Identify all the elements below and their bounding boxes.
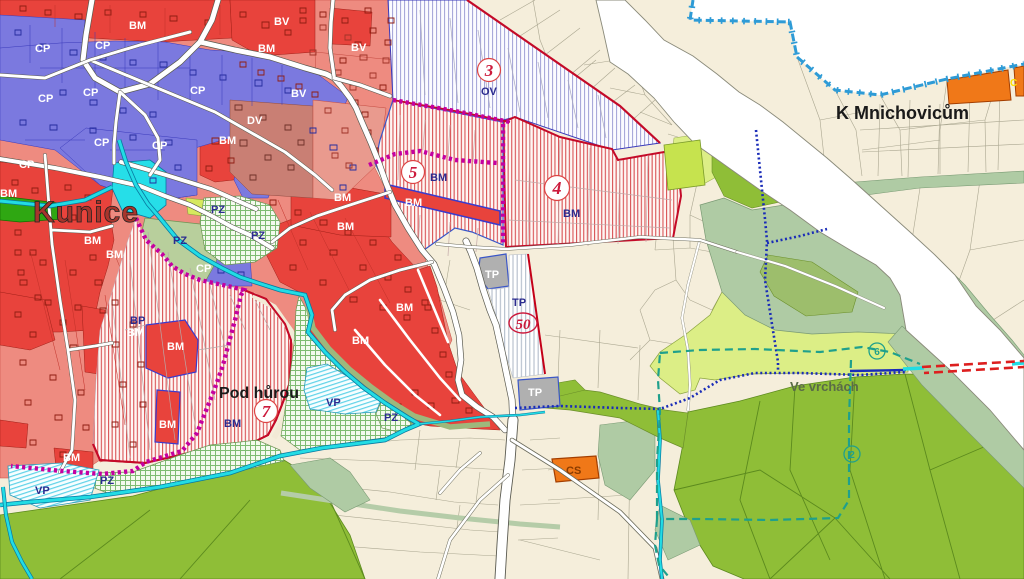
svg-text:Pod hůrou: Pod hůrou [219,385,299,402]
svg-text:PZ: PZ [100,475,114,487]
svg-text:BM: BM [84,235,101,247]
svg-text:BM: BM [159,419,176,431]
svg-text:BM: BM [106,249,123,261]
svg-text:BM: BM [563,208,580,220]
svg-text:CP: CP [19,159,34,171]
svg-text:BM: BM [334,192,351,204]
svg-text:2: 2 [849,450,855,461]
svg-text:TP: TP [485,269,499,281]
svg-text:BM: BM [352,335,369,347]
svg-text:CP: CP [38,93,53,105]
svg-text:BM: BM [430,172,447,184]
svg-text:CP: CP [196,263,211,275]
svg-text:BM: BM [224,418,241,430]
svg-text:Ve vrchách: Ve vrchách [790,379,859,394]
svg-text:BM: BM [63,452,80,464]
svg-text:DV: DV [247,115,263,127]
svg-text:BM: BM [0,188,17,200]
svg-text:BM: BM [219,135,236,147]
svg-text:CP: CP [83,87,98,99]
svg-text:PZ: PZ [384,412,398,424]
svg-text:CP: CP [152,140,167,152]
svg-text:BV: BV [291,88,307,100]
svg-text:5: 5 [409,163,418,182]
svg-text:PZ: PZ [211,204,225,216]
svg-text:Kunice: Kunice [33,196,139,229]
svg-text:3: 3 [484,61,494,80]
svg-text:CS: CS [566,465,581,477]
svg-text:BM: BM [127,327,144,339]
svg-text:50: 50 [516,317,532,333]
svg-text:BM: BM [405,197,422,209]
svg-text:BM: BM [258,43,275,55]
svg-text:TP: TP [528,387,542,399]
svg-text:BV: BV [274,16,290,28]
svg-text:CP: CP [35,43,50,55]
svg-text:PZ: PZ [251,230,265,242]
svg-text:PZ: PZ [173,235,187,247]
svg-text:BM: BM [129,20,146,32]
svg-text:VP: VP [35,485,50,497]
svg-text:4: 4 [552,178,562,198]
svg-text:BM: BM [337,221,354,233]
svg-text:CP: CP [190,85,205,97]
svg-text:C: C [1010,78,1017,89]
svg-text:BM: BM [396,302,413,314]
svg-text:OV: OV [481,86,498,98]
svg-text:BP: BP [130,315,145,327]
svg-text:TP: TP [512,297,526,309]
svg-text:BV: BV [351,42,367,54]
svg-text:CP: CP [94,137,109,149]
svg-text:6: 6 [874,347,880,358]
svg-text:VP: VP [326,397,341,409]
svg-text:K Mnichovicům: K Mnichovicům [836,103,969,123]
svg-text:CP: CP [95,40,110,52]
svg-text:BM: BM [167,341,184,353]
